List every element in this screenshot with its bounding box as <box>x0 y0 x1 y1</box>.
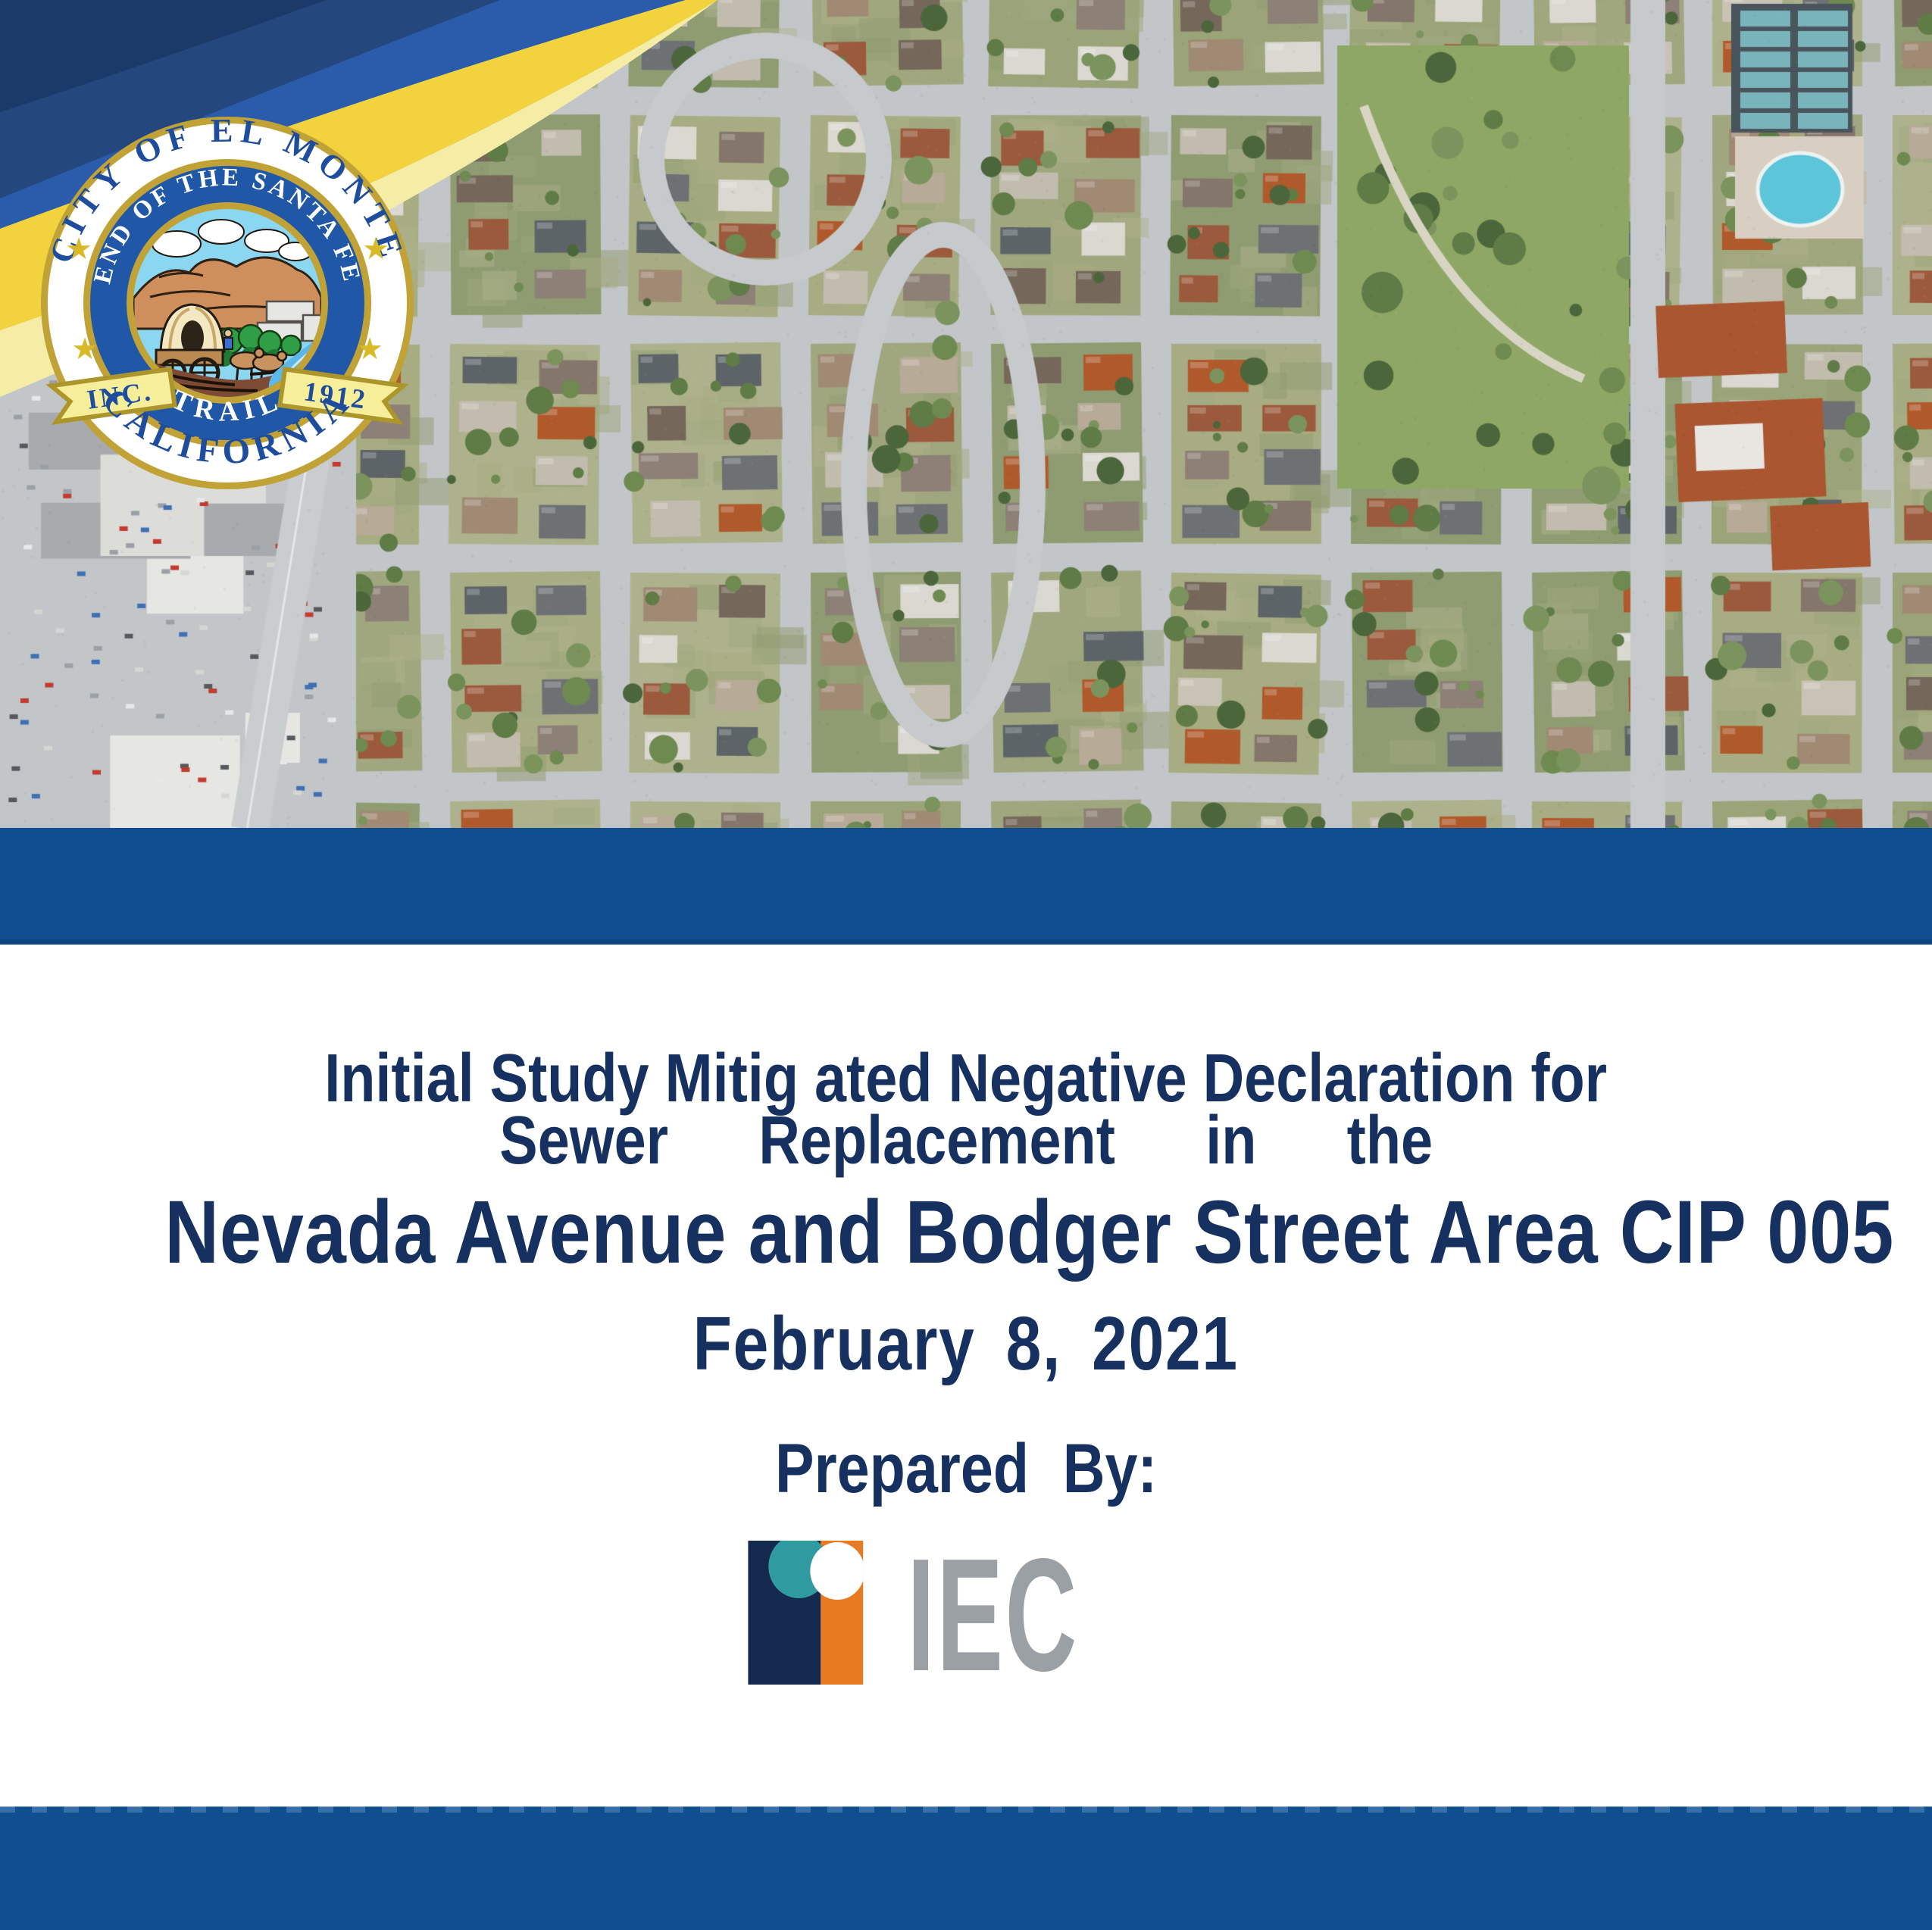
report-cover-page: INC. 1912 CITY OF EL MONTE CALIFORNIA EN… <box>0 0 1932 1930</box>
document-date: February 8, 2021 <box>0 1306 1932 1382</box>
title-line-2: Sewer Replacement in the <box>0 1107 1932 1175</box>
iec-logo: IEC <box>748 1541 1183 1689</box>
document-date-text: February 8, 2021 <box>693 1306 1239 1382</box>
iec-logo-mark-icon <box>748 1541 863 1685</box>
divider-band-bottom <box>0 1807 1932 1930</box>
iec-logo-text: IEC <box>907 1541 1079 1689</box>
title-line-3: Nevada Avenue and Bodger Street Area CIP… <box>0 1188 1932 1277</box>
logo-white-circle-icon <box>810 1542 863 1600</box>
divider-band-top <box>0 828 1932 945</box>
prepared-by-text: Prepared By: <box>775 1434 1157 1504</box>
title-line-3-text: Nevada Avenue and Bodger Street Area CIP… <box>164 1188 1894 1277</box>
aerial-photo <box>0 0 1932 829</box>
prepared-by-label: Prepared By: <box>0 1434 1932 1504</box>
band-dash-texture <box>0 1807 1932 1813</box>
title-line-2-text: Sewer Replacement in the <box>499 1107 1433 1175</box>
